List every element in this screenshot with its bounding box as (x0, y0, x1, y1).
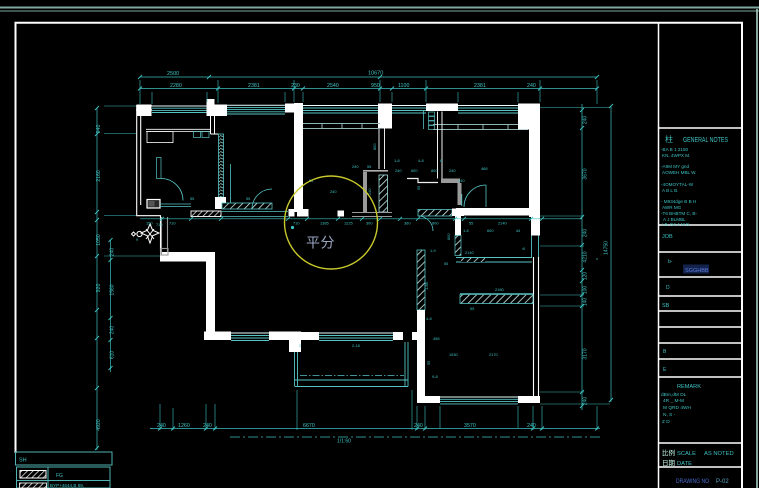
svg-text:4920: 4920 (96, 419, 102, 431)
svg-text:240: 240 (110, 248, 116, 257)
svg-text:800: 800 (372, 143, 377, 150)
svg-text:dBm,dM DL: dBm,dM DL (661, 392, 687, 398)
svg-text:AS NOTED: AS NOTED (704, 451, 734, 457)
svg-text:1225: 1225 (344, 221, 353, 226)
svg-text:140: 140 (583, 298, 589, 307)
svg-text:55: 55 (246, 196, 250, 201)
svg-text:x: x (596, 256, 598, 261)
svg-text:10670: 10670 (368, 71, 383, 77)
svg-text:2180: 2180 (495, 287, 504, 292)
svg-text:1260: 1260 (178, 423, 190, 429)
svg-text:FG: FG (56, 473, 63, 479)
svg-text:120: 120 (583, 272, 589, 281)
svg-text:1530: 1530 (449, 352, 458, 357)
svg-text:2160: 2160 (96, 170, 102, 182)
svg-text:8: 8 (440, 158, 442, 163)
svg-text:2: 2 (299, 343, 301, 348)
svg-text:-4OMOYTAL-W: -4OMOYTAL-W (661, 182, 694, 187)
svg-text:800: 800 (431, 168, 438, 173)
svg-text:- M934dge B B H: - M934dge B B H (661, 199, 696, 204)
svg-text:1560: 1560 (110, 284, 116, 295)
svg-text:920: 920 (96, 284, 102, 293)
svg-text:1-9: 1-9 (430, 248, 436, 253)
svg-text:Z D: Z D (662, 419, 670, 425)
svg-text:4R _ M-M: 4R _ M-M (663, 398, 684, 404)
svg-text:3170: 3170 (583, 348, 589, 359)
svg-text:A B L B.: A B L B. (662, 188, 678, 193)
svg-text:55: 55 (469, 221, 473, 226)
svg-text:240: 240 (414, 423, 423, 429)
svg-text:55: 55 (426, 361, 431, 365)
svg-text:468: 468 (481, 166, 488, 171)
svg-text:SH: SH (19, 458, 27, 464)
svg-text:600: 600 (487, 228, 494, 233)
svg-text:9: 9 (136, 237, 138, 242)
svg-text:240: 240 (203, 423, 212, 429)
svg-text:800: 800 (446, 233, 451, 240)
svg-text:710: 710 (293, 221, 300, 226)
svg-text:1050: 1050 (96, 234, 102, 246)
svg-text:610: 610 (110, 351, 116, 360)
svg-text:KN, 4WPX M.: KN, 4WPX M. (662, 153, 690, 158)
svg-text:2-18: 2-18 (352, 343, 360, 348)
svg-text:940: 940 (96, 125, 102, 134)
svg-text:240: 240 (449, 168, 456, 173)
svg-text:240: 240 (527, 423, 536, 429)
svg-text:230: 230 (291, 83, 300, 89)
svg-text:1100: 1100 (398, 83, 409, 89)
svg-text:2170: 2170 (489, 352, 498, 357)
svg-text:950: 950 (371, 83, 380, 89)
svg-text:DRAWING NO: DRAWING NO (676, 479, 709, 485)
svg-text:3570: 3570 (464, 423, 476, 429)
svg-text:240: 240 (352, 164, 359, 169)
svg-text:I B. B4 4 M B: I B. B4 4 M B (662, 222, 689, 227)
svg-text:JOB: JOB (662, 234, 673, 240)
svg-text:平分: 平分 (306, 235, 335, 251)
svg-text:B: B (521, 247, 526, 250)
svg-text:-BA B 1 2150: -BA B 1 2150 (661, 147, 689, 152)
svg-text:BYP+4644,B 89,: BYP+4644,B 89, (50, 483, 84, 488)
svg-text:AOWEH MBL W.: AOWEH MBL W. (662, 170, 697, 175)
svg-text:比例: 比例 (662, 448, 675, 457)
svg-text:-A9M MY gnd: -A9M MY gnd (661, 164, 689, 169)
svg-text:2140: 2140 (465, 250, 474, 255)
svg-text:240: 240 (458, 178, 465, 183)
svg-text:1-68: 1-68 (424, 282, 429, 290)
svg-text:55: 55 (367, 164, 371, 169)
svg-text:P-02: P-02 (716, 479, 729, 485)
svg-text:240: 240 (527, 83, 536, 89)
svg-text:4210: 4210 (583, 251, 589, 262)
svg-text:1-6: 1-6 (463, 228, 469, 233)
svg-text:2140: 2140 (498, 221, 507, 226)
svg-text:55: 55 (444, 261, 448, 266)
svg-text:SCALE: SCALE (677, 451, 696, 457)
svg-text:2500: 2500 (167, 71, 179, 77)
svg-text:SGGHBB: SGGHBB (685, 268, 709, 274)
svg-text:240: 240 (583, 229, 589, 238)
svg-text:360: 360 (404, 221, 411, 226)
svg-text:3670: 3670 (583, 168, 589, 179)
svg-text:AWR MG: AWR MG (662, 205, 682, 210)
svg-text:日期: 日期 (662, 459, 676, 467)
svg-text:240: 240 (110, 326, 116, 335)
svg-text:55: 55 (190, 196, 194, 201)
svg-text:4-8: 4-8 (418, 158, 424, 163)
svg-text:1-8: 1-8 (394, 158, 400, 163)
svg-text:DATE: DATE (677, 461, 692, 467)
svg-text:2381: 2381 (474, 83, 486, 89)
svg-text:2381: 2381 (248, 83, 260, 89)
svg-text:9-8: 9-8 (432, 374, 438, 379)
svg-text:14750: 14750 (604, 241, 610, 255)
svg-text:240: 240 (395, 168, 402, 173)
svg-text:GENERAL NOTES: GENERAL NOTES (683, 137, 728, 144)
svg-text:300: 300 (366, 221, 373, 226)
svg-text:240: 240 (583, 116, 589, 125)
svg-text:REMARK: REMARK (677, 384, 701, 390)
svg-text:600: 600 (411, 168, 418, 173)
svg-text:710: 710 (169, 221, 176, 226)
svg-text:-T6 BHBTM C, B-: -T6 BHBTM C, B- (661, 211, 697, 216)
svg-text:N, S -: N, S - (663, 412, 676, 418)
svg-text:D: D (666, 285, 670, 291)
svg-text:800: 800 (432, 221, 439, 226)
svg-text:柱: 柱 (665, 134, 673, 144)
svg-text:458: 458 (433, 336, 440, 341)
svg-text:1/1:60: 1/1:60 (337, 439, 351, 445)
svg-text:710: 710 (156, 222, 163, 227)
svg-text:2280: 2280 (170, 83, 182, 89)
svg-text:1385: 1385 (320, 221, 329, 226)
svg-text:55: 55 (470, 306, 474, 311)
svg-text:55: 55 (416, 186, 421, 190)
svg-text:240: 240 (330, 189, 337, 194)
svg-text:SB: SB (662, 303, 670, 309)
svg-text:100: 100 (583, 286, 589, 295)
svg-text:150: 150 (146, 221, 153, 226)
svg-text:M QRD 4WH: M QRD 4WH (663, 405, 692, 411)
svg-text:4-8: 4-8 (426, 316, 432, 321)
svg-text:6670: 6670 (303, 423, 315, 429)
svg-text:b-: b- (668, 259, 673, 265)
svg-text:2540: 2540 (327, 83, 339, 89)
svg-text:240: 240 (157, 423, 166, 429)
